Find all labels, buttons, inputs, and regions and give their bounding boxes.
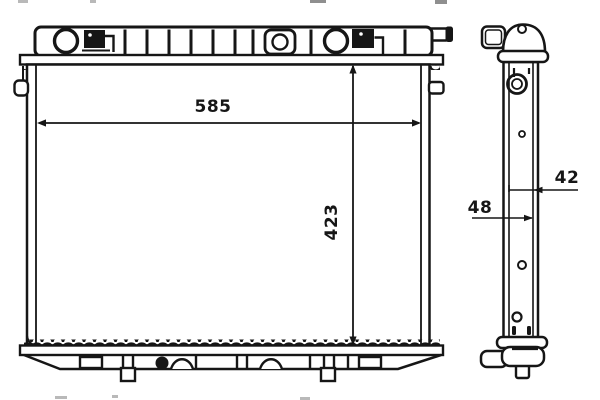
radiator-technical-drawing: 585 423 xyxy=(0,0,600,400)
right-side-stub xyxy=(429,82,444,94)
bottom-tab-left xyxy=(121,368,135,381)
side-body xyxy=(504,62,539,340)
filler-dome xyxy=(503,25,545,53)
radiator-technical-drawing-page: 585 423 xyxy=(0,0,600,400)
bottom-tank-window-left xyxy=(80,357,102,368)
dimension-label-width: 585 xyxy=(195,97,232,117)
dimension-label-overall-depth: 48 xyxy=(468,198,493,218)
dimension-label-core-depth: 42 xyxy=(555,168,580,188)
radiator-front-view: 585 423 xyxy=(15,27,454,382)
bottom-tank-window-right xyxy=(359,357,381,368)
inlet-elbow xyxy=(482,27,505,49)
bottom-hump-right xyxy=(260,359,282,369)
center-fitting xyxy=(265,30,295,54)
side-bottom-tank xyxy=(502,347,544,366)
bottom-tab-right xyxy=(321,368,335,381)
radiator-side-view: 42 48 xyxy=(468,25,580,379)
drain-plug xyxy=(156,357,169,370)
bottom-tank xyxy=(24,355,441,381)
bottom-header-band xyxy=(20,340,443,356)
bottom-hump-left xyxy=(171,359,193,369)
top-tank xyxy=(35,27,432,56)
dimension-label-height: 423 xyxy=(322,204,342,241)
top-collar xyxy=(498,51,548,62)
